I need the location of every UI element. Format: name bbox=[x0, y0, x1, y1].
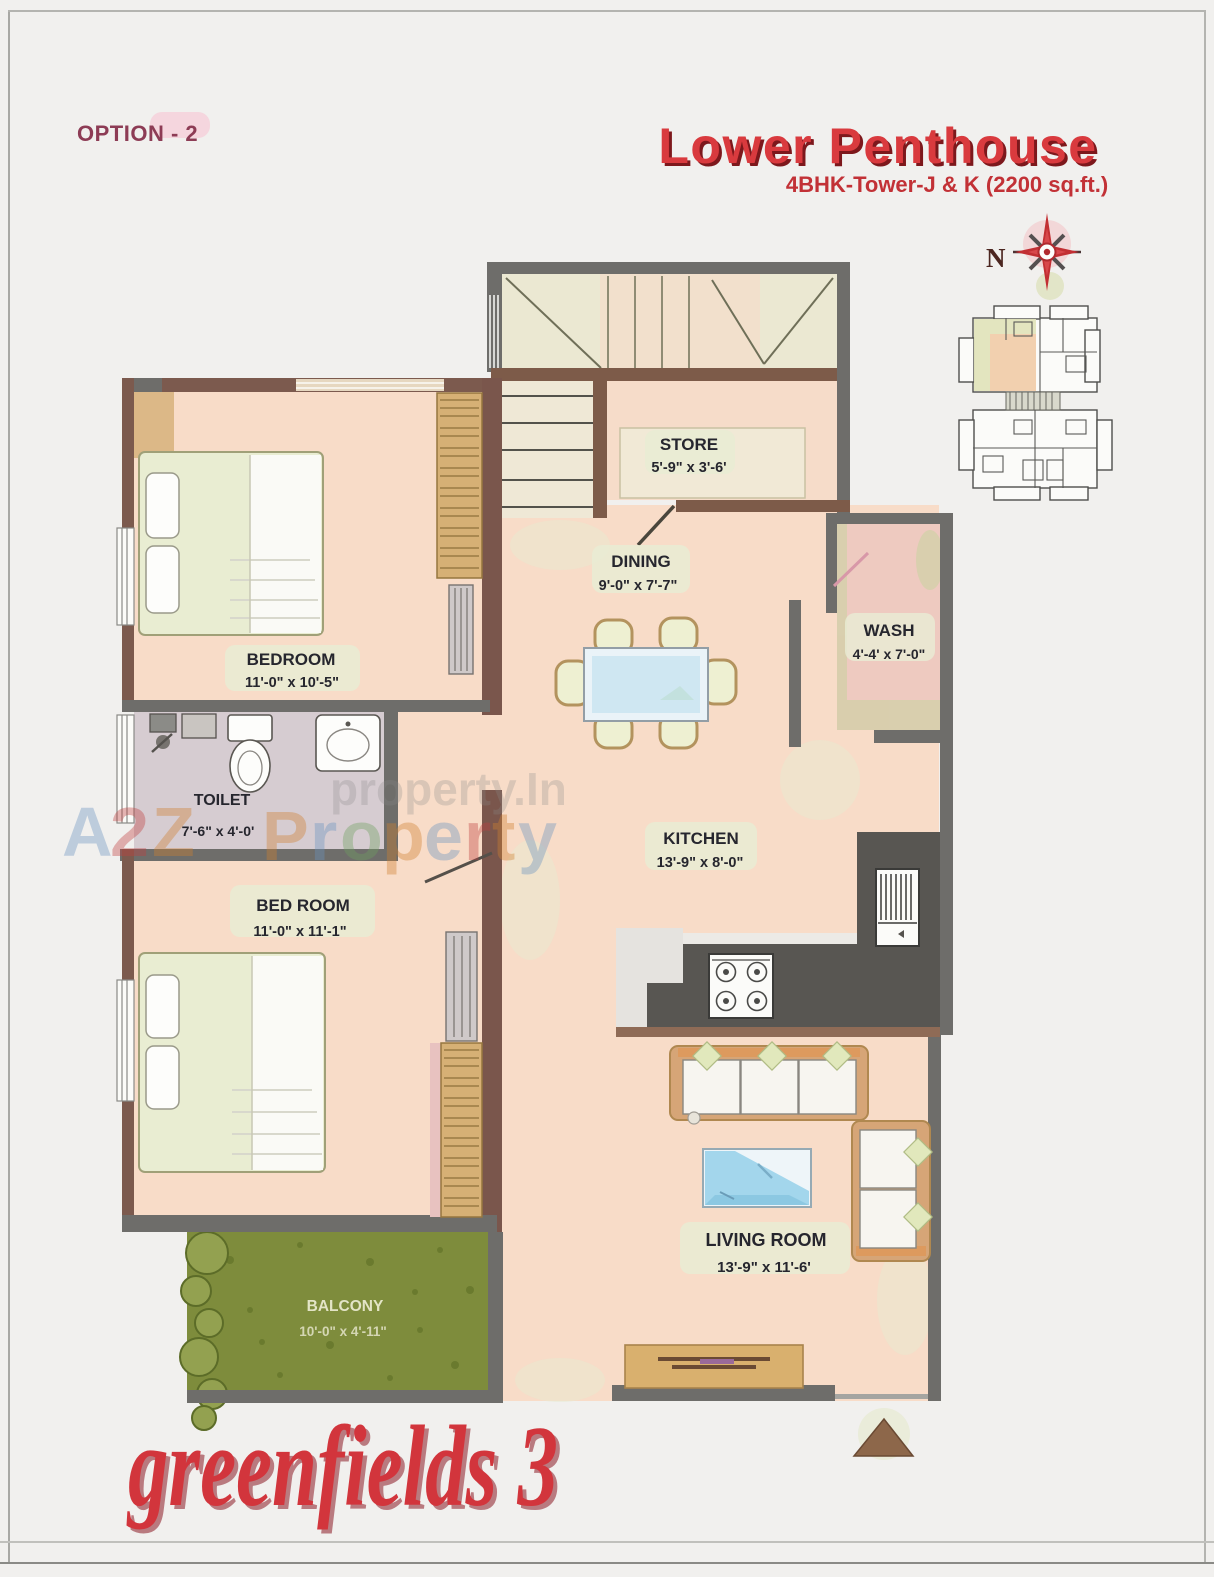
svg-text:greenfields 3: greenfields 3 bbox=[126, 1403, 558, 1530]
svg-text:STORE: STORE bbox=[660, 435, 718, 454]
svg-text:Z: Z bbox=[152, 793, 195, 871]
svg-text:OPTION - 2: OPTION - 2 bbox=[77, 121, 198, 146]
svg-text:N: N bbox=[986, 243, 1006, 273]
svg-text:9'-0" x 7'-7": 9'-0" x 7'-7" bbox=[599, 578, 678, 594]
svg-text:11'-0" x 10'-5": 11'-0" x 10'-5" bbox=[245, 675, 339, 691]
svg-text:KITCHEN: KITCHEN bbox=[663, 829, 739, 848]
svg-text:A: A bbox=[62, 793, 113, 871]
svg-text:P: P bbox=[262, 797, 309, 875]
svg-text:2: 2 bbox=[110, 793, 149, 871]
svg-text:LIVING ROOM: LIVING ROOM bbox=[706, 1230, 827, 1250]
svg-text:e: e bbox=[424, 797, 463, 875]
svg-text:o: o bbox=[340, 797, 383, 875]
svg-text:BEDROOM: BEDROOM bbox=[247, 650, 336, 669]
svg-text:y: y bbox=[518, 797, 557, 875]
svg-text:13'-9" x 11'-6': 13'-9" x 11'-6' bbox=[717, 1259, 811, 1276]
svg-text:WASH: WASH bbox=[864, 621, 915, 640]
svg-text:BED ROOM: BED ROOM bbox=[256, 896, 350, 915]
svg-text:11'-0" x 11'-1": 11'-0" x 11'-1" bbox=[253, 924, 346, 940]
svg-text:4BHK-Tower-J & K (2200 sq.ft.): 4BHK-Tower-J & K (2200 sq.ft.) bbox=[786, 172, 1108, 197]
svg-text:BALCONY: BALCONY bbox=[307, 1298, 384, 1315]
svg-text:13'-9" x 8'-0": 13'-9" x 8'-0" bbox=[657, 855, 744, 871]
svg-text:t: t bbox=[492, 797, 515, 875]
svg-text:p: p bbox=[382, 797, 425, 875]
svg-text:5'-9" x 3'-6': 5'-9" x 3'-6' bbox=[651, 460, 726, 476]
svg-text:4'-4' x 7'-0": 4'-4' x 7'-0" bbox=[853, 646, 926, 662]
svg-text:TOILET: TOILET bbox=[194, 792, 251, 809]
svg-text:DINING: DINING bbox=[611, 552, 671, 571]
svg-text:r: r bbox=[310, 797, 337, 875]
svg-text:10'-0" x 4'-11": 10'-0" x 4'-11" bbox=[299, 1324, 387, 1339]
svg-text:Lower Penthouse: Lower Penthouse bbox=[658, 118, 1097, 174]
svg-text:r: r bbox=[464, 797, 491, 875]
